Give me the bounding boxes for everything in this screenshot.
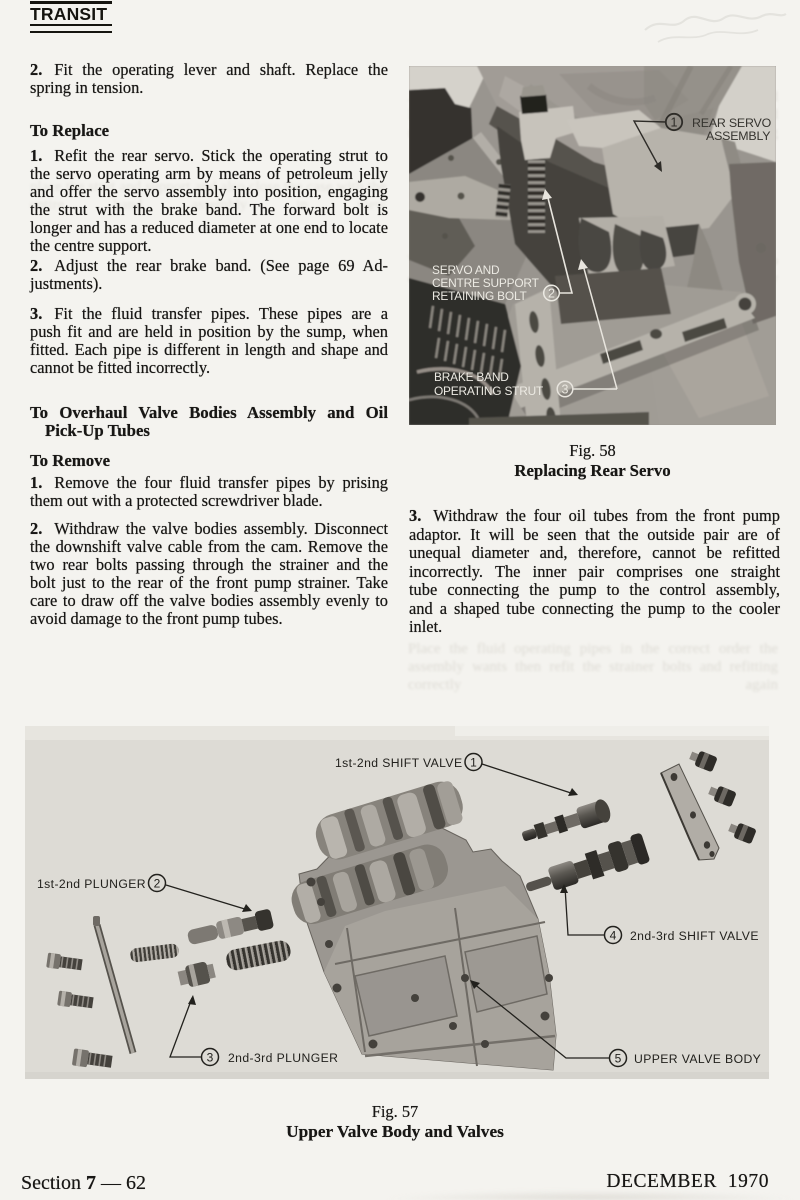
svg-text:1: 1: [671, 116, 678, 130]
svg-text:2nd-3rd PLUNGER: 2nd-3rd PLUNGER: [228, 1051, 338, 1065]
svg-text:3: 3: [207, 1051, 214, 1065]
svg-text:ASSEMBLY: ASSEMBLY: [706, 129, 770, 143]
svg-text:1st-2nd SHIFT VALVE: 1st-2nd SHIFT VALVE: [335, 756, 463, 770]
svg-text:REAR SERVO: REAR SERVO: [692, 116, 772, 130]
svg-text:1st-2nd PLUNGER: 1st-2nd PLUNGER: [37, 877, 146, 891]
svg-text:OPERATING STRUT: OPERATING STRUT: [434, 384, 543, 398]
svg-text:2: 2: [154, 877, 161, 891]
svg-text:5: 5: [615, 1052, 622, 1066]
svg-text:2nd-3rd SHIFT VALVE: 2nd-3rd SHIFT VALVE: [630, 929, 759, 943]
svg-text:UPPER VALVE BODY: UPPER VALVE BODY: [634, 1052, 761, 1066]
svg-text:SERVO AND: SERVO AND: [432, 263, 500, 277]
svg-text:1: 1: [470, 756, 477, 770]
svg-text:4: 4: [610, 929, 617, 943]
svg-text:BRAKE BAND: BRAKE BAND: [434, 370, 509, 384]
svg-text:3: 3: [562, 383, 569, 397]
svg-text:2: 2: [548, 287, 555, 301]
svg-text:CENTRE SUPPORT: CENTRE SUPPORT: [432, 276, 539, 290]
svg-text:RETAINING BOLT: RETAINING BOLT: [432, 289, 527, 303]
